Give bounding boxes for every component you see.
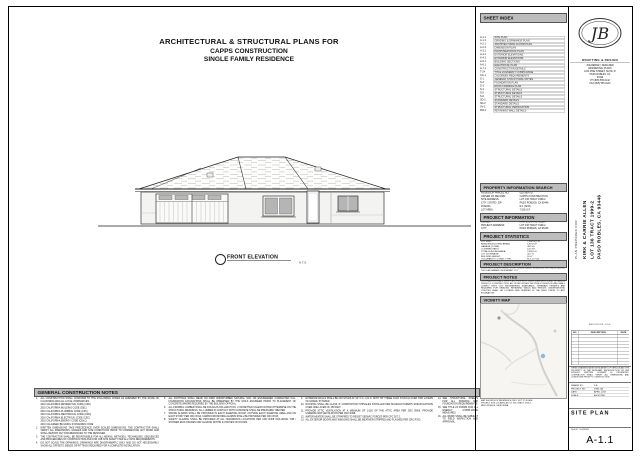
elevation-reference-bubble [215,254,226,265]
general-note: 11.PROVIDE ATTIC VENTILATION AT A MINIMU… [301,409,433,415]
revision-title: REVISION LOG [571,323,629,326]
titleblock-field-row: SCALE:AS NOTED [571,394,629,397]
plan-title: ARCHITECTURAL & STRUCTURAL PLANS FOR CAP… [49,37,449,63]
firm-address: JOE BERKEY, DESIGNER RESIDENTIAL PLANS 1… [570,64,630,85]
prepared-for-label: PLAN PREPARED FOR [575,119,578,259]
project-info-rows: OWNER:KIRK & CARRIE ALLENPROJECT ADDRESS… [481,221,565,232]
roof-vent [207,173,213,177]
firm-name: DRAFTING & DESIGN [570,59,630,63]
plan-prepared-for-block: PLAN PREPARED FOR KIRK & CARRIE ALLEN LO… [575,119,615,259]
elevation-label: FRONT ELEVATION [227,254,291,261]
general-note: 15.SEE TITLE 24 FORMS FOR ALL ENERGY COM… [438,406,478,414]
general-note: 9.EXTERIOR WALLS SHALL BE 2X4 STUDS AT 1… [301,397,433,403]
client-name: KIRK & CARRIE ALLEN [582,119,589,259]
plan-title-line3: SINGLE FAMILY RESIDENCE [49,56,449,63]
general-note: 4.DO NOT SCALE THE DRAWINGS. DRAWINGS AR… [36,441,159,447]
project-notes-text: CONTRACTOR SHALL VERIFY ALL PROPERTY LIN… [481,280,565,294]
plan-title-line1: ARCHITECTURAL & STRUCTURAL PLANS FOR [49,37,449,46]
plan-title-line2: CAPPS CONSTRUCTION [49,48,449,55]
entry-door [307,191,319,223]
sheet-title-slot: SITE PLAN [571,410,629,419]
map-site-marker [541,354,545,358]
vicinity-map [480,303,567,399]
general-note: 8.SAFETY GLAZING SHALL BE PROVIDED AT AL… [164,418,296,424]
map-water-dot [554,330,557,333]
vicinity-map-caption-slot: MAP SHOWN FOR REFERENCE ONLY. NOT TO SCA… [481,399,565,410]
sheet-number-cell: RW-1 [480,109,493,112]
property-search-header-bar: PROPERTY INFORMATION SEARCH [480,183,567,192]
project-notes-text-slot: CONTRACTOR SHALL VERIFY ALL PROPERTY LIN… [481,280,565,295]
roof-vent [315,167,321,171]
general-note: 6.ALL FRAMING LUMBER SHALL BE DOUGLAS FI… [164,406,296,412]
sheet-number: A-1.1 [571,434,629,446]
sheet-index-table: A-1.1 SITE PLAN A-1.2 GRADING & DRAINAGE… [480,36,565,113]
project-stats-header: PROJECT STATISTICS [481,233,567,240]
logo-monogram: JB [588,24,609,43]
general-note: 7.SMOKE ALARMS SHALL BE PROVIDED IN EACH… [164,412,296,418]
revision-title-slot: REVISION LOG [571,323,629,329]
sheet-title: SITE PLAN [571,410,629,416]
map-town-dot [497,316,500,319]
general-note: 1.ALL CONSTRUCTION SHALL CONFORM TO THE … [36,397,159,403]
general-notes-header-bar: GENERAL CONSTRUCTION NOTES [34,388,480,397]
general-note: 2.WRITTEN DIMENSIONS TAKE PRECEDENCE OVE… [36,426,159,434]
plan-sheet-page: ARCHITECTURAL & STRUCTURAL PLANS FOR CAP… [0,0,640,457]
info-row: LOT AREA:7,500 S.F. [481,209,565,212]
project-info-header: PROJECT INFORMATION [481,214,567,221]
bedroom-window [336,196,360,212]
general-notes-column-4: 14.SEE STRUCTURAL SHEETS FOR ALL FRAMING… [438,397,478,448]
living-room-window [261,196,296,217]
divider-sidebar-titleblock [568,7,569,450]
sheet-border: ARCHITECTURAL & STRUCTURAL PLANS FOR CAP… [8,6,633,451]
general-notes-column-1: 1.ALL CONSTRUCTION SHALL CONFORM TO THE … [36,397,159,448]
general-notes-column-2: 5.ALL FOOTINGS SHALL BEAR ON FIRM UNDIST… [164,397,296,448]
disclaimer-slot: THESE DRAWINGS ARE INSTRUMENTS OF SERVIC… [571,367,629,381]
sheet-number-label: SHEET NUMBER [571,428,629,431]
sheet-index-header-bar: SHEET INDEX [480,13,567,23]
sheet-number-label-slot: SHEET NUMBER [571,428,629,433]
general-note: 13.ALL EXTERIOR DOORS AND WINDOWS SHALL … [301,419,433,422]
property-search-header: PROPERTY INFORMATION SEARCH [481,184,567,191]
divider-main-sidebar [475,7,476,450]
revision-table: NO. DESCRIPTION DATE [571,330,629,365]
general-note: 3.THE CONTRACTOR SHALL BE RESPONSIBLE FO… [36,435,159,441]
garage-door [156,194,228,223]
client-city: PASO ROBLES, CA 93446 [596,119,603,259]
general-notes-header: GENERAL CONSTRUCTION NOTES [35,389,480,396]
front-elevation-drawing [89,145,489,239]
project-stats-rows: LOT SIZE:7,500 SQ. FT.RESIDENCE (LIVING … [481,240,565,260]
property-search-rows: ASSESSOR PARCEL NO:025-380-017OWNER OF R… [481,192,565,213]
disclaimer-text: THESE DRAWINGS ARE INSTRUMENTS OF SERVIC… [571,367,629,379]
client-lot: LOT 136 TRACT 1999-2 [589,119,596,259]
project-description-text: CONSTRUCT A NEW SINGLE STORY SINGLE FAMI… [481,267,565,272]
general-note: 5.ALL FOOTINGS SHALL BEAR ON FIRM UNDIST… [164,397,296,405]
general-note: 16.ALL WORK SHALL BE SUBJECT TO FIELD IN… [438,415,478,423]
general-notes-column-3: 9.EXTERIOR WALLS SHALL BE 2X4 STUDS AT 1… [301,397,433,448]
general-note: 10.ROOFING SHALL BE CLASS 'A' COMPOSITIO… [301,403,433,409]
sheet-index-header: SHEET INDEX [481,14,567,22]
info-row: CITY:PASO ROBLES, CA 93446 [481,228,565,231]
firm-block: DRAFTING & DESIGN JOE BERKEY, DESIGNER R… [570,59,630,101]
elevation-scale-note: N.T.S. [227,262,307,265]
sheet-index-row: RW-1 RETAINING WALL DETAILS [480,109,565,112]
general-note: 14.SEE STRUCTURAL SHEETS FOR ALL FRAMING… [438,397,478,405]
firm-logo: JB [575,15,625,57]
titleblock-fields: DRAWN BY:J.B. PROJECT NO:1999-136 DATE:A… [571,384,629,407]
sheet-title-cell: RETAINING WALL DETAILS [493,109,565,112]
vicinity-map-caption: MAP SHOWN FOR REFERENCE ONLY. NOT TO SCA… [481,399,565,407]
